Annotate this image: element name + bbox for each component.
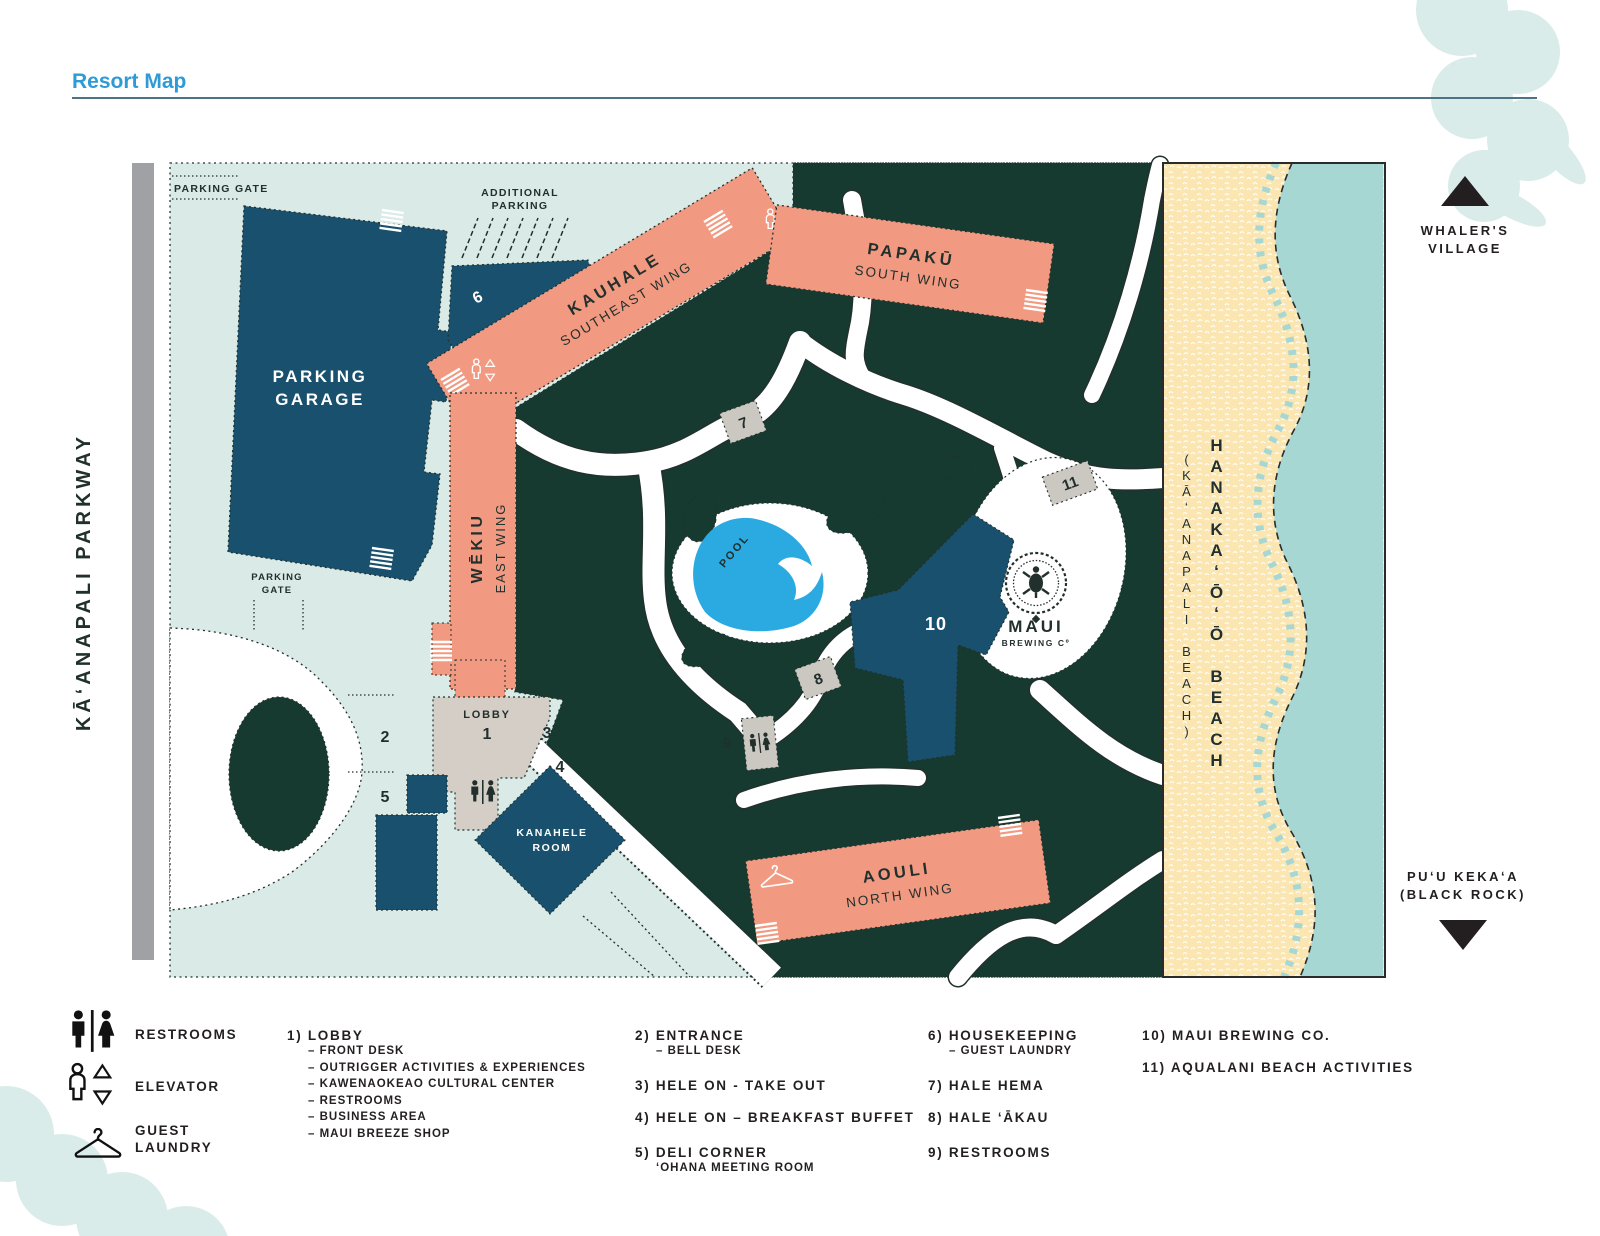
legend-item-hale-hema: 7) HALE HEMA	[928, 1078, 1044, 1093]
number-3: 3	[543, 725, 552, 742]
svg-text:9: 9	[723, 735, 731, 752]
puu-kekaa-label-1: PUʻU KEKAʻA	[1388, 868, 1538, 886]
brewing-logo-text: MAUI	[1008, 617, 1063, 636]
whalers-village-pointer: WHALER'S VILLAGE	[1390, 176, 1540, 258]
legend-item-deli-corner: 5) DELI CORNER ʻOHANA MEETING ROOM	[635, 1145, 815, 1177]
wekiu-sublabel: EAST WING	[493, 503, 508, 594]
legend-item-maui-brewing: 10) MAUI BREWING CO.	[1142, 1028, 1331, 1043]
svg-text:ROOM: ROOM	[532, 842, 571, 854]
parking-garage: PARKING GARAGE	[228, 206, 452, 581]
arrow-up-icon	[1441, 176, 1489, 206]
legend-elevator-label: ELEVATOR	[135, 1078, 220, 1095]
legend-restrooms-label: RESTROOMS	[135, 1026, 237, 1043]
lei-decoration-bottom-left	[0, 1086, 230, 1236]
parkway-road	[132, 163, 154, 960]
svg-text:PARKING: PARKING	[251, 572, 303, 583]
number-5: 5	[381, 789, 390, 806]
legend-item-aqualani: 11) AQUALANI BEACH ACTIVITIES	[1142, 1060, 1414, 1075]
svg-text:ADDITIONAL: ADDITIONAL	[481, 187, 559, 199]
beach-name-label: HANAKAʻŌʻŌ BEACH	[1208, 436, 1225, 772]
legend-elevator-icon	[66, 1062, 116, 1108]
legend-item-restrooms: 9) RESTROOMS	[928, 1145, 1051, 1160]
whalers-village-label-1: WHALER'S	[1390, 222, 1540, 240]
wekiu-label: WĒKIU	[467, 513, 486, 584]
lobby-number: 1	[483, 726, 492, 743]
garage-label-2: GARAGE	[275, 390, 365, 409]
puu-kekaa-pointer: PUʻU KEKAʻA (BLACK ROCK)	[1388, 868, 1538, 950]
svg-text:PARKING: PARKING	[492, 200, 549, 212]
arrow-down-icon	[1439, 920, 1487, 950]
number-4: 4	[556, 759, 565, 776]
svg-text:KANAHELE: KANAHELE	[516, 827, 587, 839]
puu-kekaa-label-2: (BLACK ROCK)	[1388, 886, 1538, 904]
beach	[1163, 163, 1385, 977]
beach-subname-label: (KĀʻANAPALI BEACH)	[1180, 452, 1193, 740]
svg-text:PARKING GATE: PARKING GATE	[174, 183, 269, 195]
landscape-island	[229, 697, 329, 851]
page-title: Resort Map	[72, 70, 186, 94]
legend-item-hele-on-breakfast: 4) HELE ON – BREAKFAST BUFFET	[635, 1110, 915, 1125]
title-rule	[72, 97, 1537, 99]
whalers-village-label-2: VILLAGE	[1390, 240, 1540, 258]
legend-item-hele-on-takeout: 3) HELE ON - TAKE OUT	[635, 1078, 826, 1093]
number-2: 2	[381, 729, 390, 746]
legend-item-entrance: 2) ENTRANCE – BELL DESK	[635, 1028, 744, 1060]
brewing-logo-subtext: BREWING Cº	[1002, 638, 1071, 648]
lobby-label: LOBBY	[463, 709, 511, 721]
garage-label-1: PARKING	[273, 367, 368, 386]
parkway-label: KĀʻANAPALI PARKWAY	[73, 433, 95, 731]
brewing-number: 10	[925, 614, 947, 634]
resort-map-svg: KĀʻANAPALI PARKWAY	[0, 0, 1600, 1236]
legend-item-housekeeping: 6) HOUSEKEEPING – GUEST LAUNDRY	[928, 1028, 1078, 1060]
legend-item-hale-akau: 8) HALE ʻĀKAU	[928, 1110, 1049, 1125]
legend-item-lobby: 1) LOBBY – FRONT DESK – OUTRIGGER ACTIVI…	[287, 1028, 586, 1142]
legend-laundry-label: GUEST LAUNDRY	[135, 1122, 212, 1156]
legend-restrooms-icon	[70, 1010, 116, 1054]
legend-laundry-icon	[72, 1128, 124, 1160]
svg-text:GATE: GATE	[262, 585, 292, 596]
resort-map-page: { "page": { "title": "Resort Map" }, "ma…	[0, 0, 1600, 1236]
